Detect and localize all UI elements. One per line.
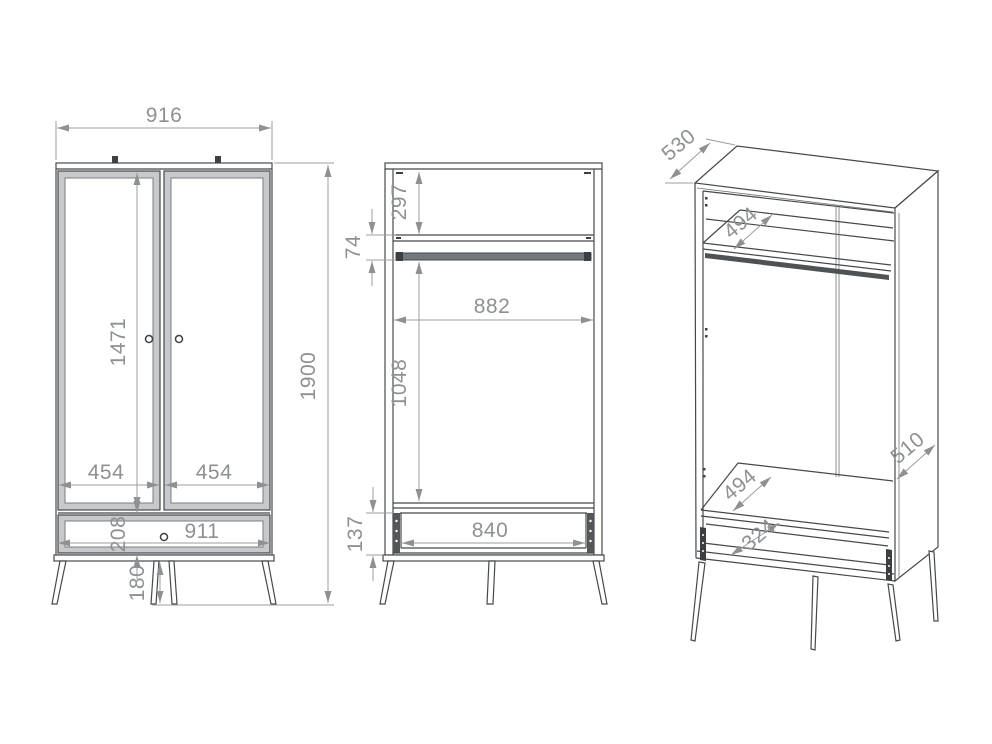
dim-530-label: 530 bbox=[657, 124, 700, 165]
slide-screw bbox=[702, 550, 704, 552]
dim-137-label: 137 bbox=[344, 516, 367, 553]
hanging-rod bbox=[396, 252, 591, 261]
hinge-mark-right bbox=[215, 156, 221, 163]
dim-494-bottom: 494 bbox=[718, 464, 771, 511]
dim-454-right-label: 454 bbox=[196, 461, 233, 484]
leg bbox=[929, 551, 938, 621]
slide-screw bbox=[589, 520, 591, 522]
slide-screw bbox=[702, 542, 704, 544]
right-door-panel bbox=[171, 178, 263, 503]
front-left-edge bbox=[695, 183, 696, 558]
shelf-front-top bbox=[701, 510, 889, 532]
dim-911-label: 911 bbox=[185, 520, 220, 543]
dim-494-top-label: 494 bbox=[719, 202, 762, 243]
slide-screw bbox=[888, 557, 890, 559]
pin-hole bbox=[705, 204, 708, 207]
dim-1471-label: 1471 bbox=[107, 318, 130, 367]
wardrobe-technical-drawing: 916 1471 454 454 208 911 180 bbox=[0, 0, 992, 744]
top-face bbox=[695, 146, 938, 208]
drawer-knob bbox=[161, 534, 168, 541]
slide-screw bbox=[589, 530, 591, 532]
hinge-mark-left bbox=[112, 156, 118, 163]
leg bbox=[811, 576, 818, 650]
leg bbox=[151, 561, 159, 604]
slide-screw bbox=[888, 573, 890, 575]
base-panel bbox=[54, 555, 274, 561]
pin-hole bbox=[705, 197, 708, 200]
interior-view: 297 74 882 1048 137 840 bbox=[342, 163, 607, 604]
hanging-rod-3d bbox=[705, 253, 889, 280]
shelf-front-top bbox=[703, 243, 891, 265]
rod-bar bbox=[396, 253, 591, 260]
pin-hole bbox=[703, 475, 706, 478]
right-door bbox=[164, 171, 270, 510]
pin-hole bbox=[703, 468, 706, 471]
leg bbox=[52, 561, 66, 604]
interior-legs bbox=[380, 561, 607, 604]
dim-1900: 1900 bbox=[274, 163, 334, 603]
front-view: 916 1471 454 454 208 911 180 bbox=[52, 104, 334, 605]
leg bbox=[487, 561, 495, 604]
dim-1900-label: 1900 bbox=[297, 352, 320, 401]
right-face bbox=[895, 171, 938, 581]
leg bbox=[593, 561, 607, 604]
slide-screw bbox=[395, 530, 397, 532]
dim-916: 916 bbox=[56, 104, 272, 160]
slide-screw bbox=[589, 540, 591, 542]
leg bbox=[380, 561, 394, 604]
slide-screw bbox=[888, 565, 890, 567]
base-panel bbox=[383, 555, 604, 561]
dim-74-label: 74 bbox=[342, 235, 365, 259]
dim-180-label: 180 bbox=[126, 565, 149, 602]
right-door-knob bbox=[176, 336, 183, 343]
dim-494-bottom-label: 494 bbox=[718, 464, 761, 505]
leg bbox=[262, 561, 276, 604]
leg bbox=[169, 561, 177, 604]
drawer-3d bbox=[697, 524, 894, 581]
rod-mount-right bbox=[584, 252, 591, 261]
drawing-canvas: 916 1471 454 454 208 911 180 bbox=[0, 0, 992, 744]
rod-mount-left bbox=[396, 252, 403, 261]
leg bbox=[888, 584, 900, 641]
leg bbox=[691, 562, 705, 641]
pin-hole bbox=[705, 335, 708, 338]
bottom-front-edge bbox=[696, 558, 895, 581]
ext-line bbox=[706, 139, 735, 145]
shelf-back-edge bbox=[738, 463, 893, 481]
slide-screw bbox=[395, 520, 397, 522]
dim-208-label: 208 bbox=[107, 516, 130, 553]
dim-840-label: 840 bbox=[472, 519, 509, 542]
drawer-slide-left bbox=[393, 513, 400, 553]
cabinet-body bbox=[385, 163, 602, 555]
dim-1048-label: 1048 bbox=[388, 359, 411, 408]
dim-882-label: 882 bbox=[474, 295, 511, 318]
left-door-knob bbox=[146, 336, 153, 343]
front-legs bbox=[52, 561, 276, 604]
drawer-slide-right bbox=[587, 513, 594, 553]
drawer-front bbox=[58, 513, 270, 553]
slide-screw bbox=[702, 534, 704, 536]
perspective-view: 530 494 494 324 510 bbox=[657, 124, 938, 650]
pin-hole bbox=[705, 328, 708, 331]
slide-screw bbox=[395, 540, 397, 542]
dim-454-left-label: 454 bbox=[88, 461, 125, 484]
dim-916-label: 916 bbox=[146, 104, 183, 127]
dim-297-label: 297 bbox=[388, 184, 411, 221]
